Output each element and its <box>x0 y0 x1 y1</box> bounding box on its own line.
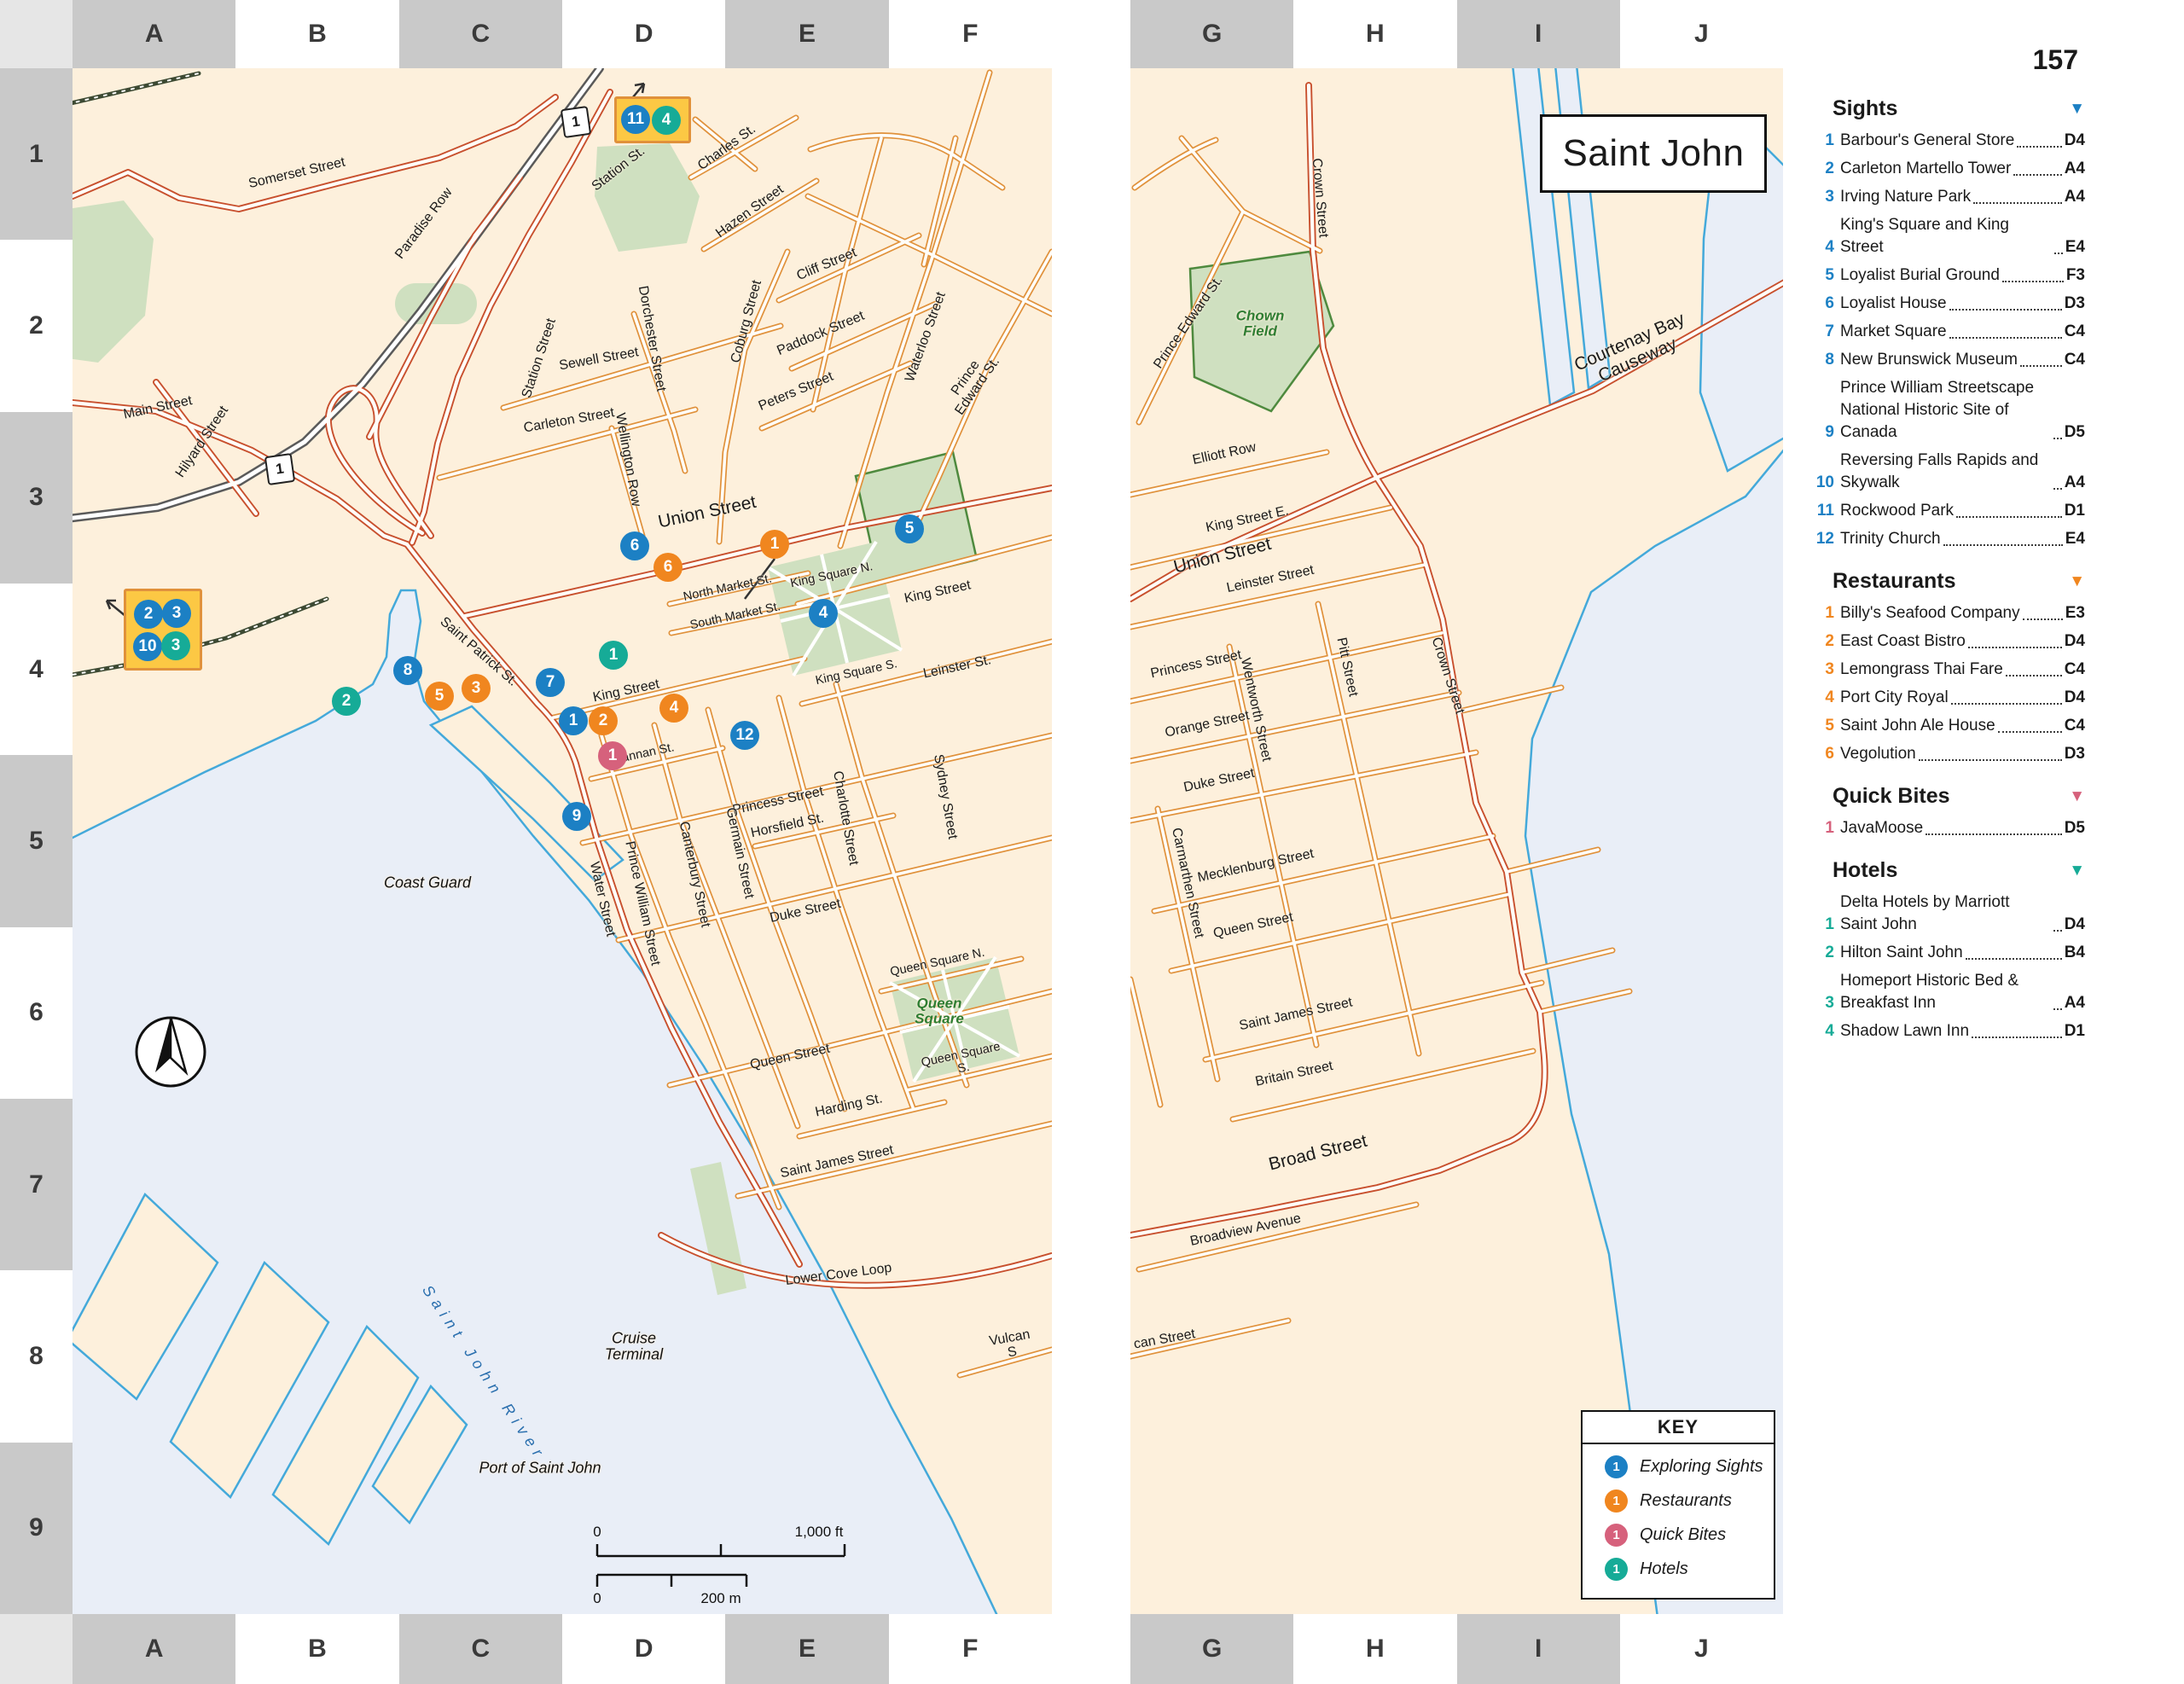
map-title: Saint John <box>1540 114 1767 193</box>
street-label: King Street <box>903 578 972 606</box>
legend-item-number: 6 <box>1812 293 1834 315</box>
legend-section-title: Hotels <box>1833 858 1897 883</box>
legend-item: 9Prince William Streetscape National His… <box>1812 377 2085 444</box>
legend-leader-dots <box>1926 833 2062 835</box>
legend-leader-dots <box>2053 1008 2062 1010</box>
marker-callout-box <box>124 589 202 671</box>
map-marker-sight-11: 11 <box>621 105 650 134</box>
street-label: Dorchester Street <box>636 285 669 392</box>
street-label: Canterbury Street <box>676 820 712 928</box>
grid-col-G: G <box>1130 1614 1293 1684</box>
grid-col-D: D <box>562 0 725 68</box>
street-label: Crown Street <box>1309 158 1330 239</box>
legend-item-name: Carleton Martello Tower <box>1840 158 2011 180</box>
legend-item: 4Shadow Lawn InnD1 <box>1812 1020 2085 1042</box>
street-label: Hazen Street <box>713 183 787 241</box>
map-panel-left: 0 1,000 ft 0 200 m Somerset StreetParadi… <box>73 68 1052 1614</box>
map-marker-sight-4: 4 <box>809 599 838 628</box>
legend-item: 2Carleton Martello TowerA4 <box>1812 158 2085 180</box>
legend-item-gridref: D1 <box>2065 500 2085 522</box>
section-triangle-icon: ▼ <box>2069 100 2085 119</box>
street-label: Orange Street <box>1164 708 1251 740</box>
grid-row-5: 5 <box>0 755 73 926</box>
map-marker-sight-12: 12 <box>730 721 759 750</box>
legend-item: 4King's Square and King StreetE4 <box>1812 214 2085 258</box>
legend-item-gridref: D1 <box>2065 1020 2085 1042</box>
key-marker-icon: 1 <box>1605 1558 1628 1581</box>
legend-item-gridref: D3 <box>2065 743 2085 765</box>
map-marker-restaurant-5: 5 <box>425 682 454 711</box>
legend-leader-dots <box>2002 281 2064 282</box>
map-marker-hotel-4: 4 <box>652 106 681 135</box>
legend-item-gridref: E4 <box>2065 528 2085 550</box>
legend-leader-dots <box>2017 146 2061 148</box>
street-label: Mecklenburg Street <box>1196 846 1315 886</box>
legend-item: 8New Brunswick MuseumC4 <box>1812 349 2085 371</box>
grid-row-6: 6 <box>0 927 73 1099</box>
street-label: Paradise Row <box>392 185 456 262</box>
legend-panel: 157 Sights▼1Barbour's General StoreD42Ca… <box>1812 44 2085 1048</box>
grid-col-F: F <box>889 0 1052 68</box>
grid-col-H: H <box>1293 1614 1456 1684</box>
key-item: 1Quick Bites <box>1605 1524 1774 1547</box>
legend-item-name: Homeport Historic Bed & Breakfast Inn <box>1840 970 2051 1014</box>
legend-item: 2East Coast BistroD4 <box>1812 630 2085 653</box>
street-label: Carleton Street <box>523 405 616 436</box>
grid-col-I: I <box>1457 1614 1620 1684</box>
street-label: King Street <box>591 677 660 705</box>
legend-item-number: 4 <box>1812 236 1834 258</box>
scale-m-max: 200 m <box>700 1590 741 1607</box>
legend-item: 1JavaMooseD5 <box>1812 817 2085 839</box>
street-label: King Square S. <box>815 658 899 688</box>
street-label: Princess Street <box>731 784 825 817</box>
street-label: Horsfield St. <box>750 810 826 840</box>
grid-col-A: A <box>73 0 235 68</box>
map-marker-quickbite-1: 1 <box>598 741 627 770</box>
legend-item-number: 10 <box>1812 472 1834 494</box>
legend-item-name: Prince William Streetscape National Hist… <box>1840 377 2051 444</box>
street-label: Paddock Street <box>775 309 866 359</box>
legend-item: 5Saint John Ale HouseC4 <box>1812 715 2085 737</box>
street-label: Broad Street <box>1267 1132 1369 1176</box>
legend-item: 7Market SquareC4 <box>1812 321 2085 343</box>
grid-row-7: 7 <box>0 1099 73 1270</box>
legend-item-name: Lemongrass Thai Fare <box>1840 659 2003 681</box>
map-marker-restaurant-3: 3 <box>462 674 491 703</box>
street-label: Station St. <box>590 143 648 194</box>
place-label: Coast Guard <box>384 874 471 891</box>
map-marker-sight-6: 6 <box>620 531 649 560</box>
legend-item-gridref: E3 <box>2065 602 2085 624</box>
legend-item-number: 8 <box>1812 349 1834 371</box>
legend-item-number: 1 <box>1812 817 1834 839</box>
scale-m-zero: 0 <box>593 1590 601 1607</box>
legend-item-gridref: E4 <box>2065 236 2085 258</box>
legend-item-name: Irving Nature Park <box>1840 186 1971 208</box>
map-marker-restaurant-2: 2 <box>589 706 618 735</box>
street-label: North Market St. <box>682 572 774 604</box>
key-marker-icon: 1 <box>1605 1455 1628 1478</box>
legend-section-header-sights: Sights▼ <box>1812 96 2085 121</box>
legend-item-gridref: D5 <box>2065 421 2085 444</box>
legend-item-gridref: A4 <box>2065 472 2085 494</box>
legend-item: 1Barbour's General StoreD4 <box>1812 130 2085 152</box>
street-label: Broadview Avenue <box>1189 1211 1303 1249</box>
legend-item-name: Loyalist Burial Ground <box>1840 264 2000 287</box>
map-marker-sight-3: 3 <box>162 599 191 628</box>
street-label: Wentworth Street <box>1238 657 1275 763</box>
key-item-label: Hotels <box>1640 1559 1688 1579</box>
street-label: Station Street <box>520 316 559 400</box>
legend-item: 3Lemongrass Thai FareC4 <box>1812 659 2085 681</box>
grid-col-E: E <box>725 0 888 68</box>
legend-leader-dots <box>2053 930 2062 932</box>
legend-item-gridref: B4 <box>2065 942 2085 964</box>
street-label: Sydney Street <box>931 753 960 840</box>
street-label: Waterloo Street <box>903 290 949 384</box>
key-box: KEY 1Exploring Sights1Restaurants1Quick … <box>1581 1410 1775 1600</box>
section-triangle-icon: ▼ <box>2069 572 2085 591</box>
highway-shield: 1 <box>561 106 591 138</box>
street-label: Prince Edward St. <box>1151 274 1226 372</box>
legend-leader-dots <box>2053 438 2062 439</box>
street-label: Courtenay Bay Causeway <box>1558 304 1710 400</box>
map-page: AABBCCDDEEFFGGHHIIJJ123456789 <box>0 0 2184 1684</box>
street-label: Britain Street <box>1254 1059 1334 1089</box>
grid-corner-top-left <box>0 0 73 68</box>
legend-item-name: Trinity Church <box>1840 528 1941 550</box>
legend-item: 3Irving Nature ParkA4 <box>1812 186 2085 208</box>
grid-col-J: J <box>1620 1614 1783 1684</box>
legend-item-gridref: D4 <box>2065 687 2085 709</box>
street-label: Germain Street <box>723 806 756 900</box>
grid-row-4: 4 <box>0 584 73 755</box>
street-label: Sewell Street <box>558 345 640 373</box>
legend-leader-dots <box>1943 544 2063 546</box>
legend-item-gridref: D4 <box>2065 130 2085 152</box>
grid-row-1: 1 <box>0 68 73 240</box>
street-label: Cliff Street <box>794 246 858 284</box>
legend-section-title: Sights <box>1833 96 1897 121</box>
legend-item-name: Saint John Ale House <box>1840 715 1995 737</box>
key-item: 1Restaurants <box>1605 1489 1774 1513</box>
street-label: Queen Square S. <box>915 1040 1008 1084</box>
street-label: Wellington Row <box>613 412 643 508</box>
map-marker-sight-8: 8 <box>393 656 422 685</box>
grid-col-C: C <box>399 1614 562 1684</box>
place-label: Port of Saint John <box>479 1460 601 1476</box>
legend-item-name: Hilton Saint John <box>1840 942 1963 964</box>
legend-item-name: Loyalist House <box>1840 293 1947 315</box>
street-label: Prince Edward St. <box>937 341 1007 424</box>
legend-item-number: 6 <box>1812 743 1834 765</box>
street-label: Leinster Street <box>1225 563 1315 596</box>
legend-leader-dots <box>1956 516 2062 518</box>
scale-ft-max: 1,000 ft <box>795 1524 844 1541</box>
legend-item-name: Reversing Falls Rapids and Skywalk <box>1840 450 2051 494</box>
legend-item-number: 2 <box>1812 942 1834 964</box>
grid-corner-bottom-left <box>0 1614 73 1684</box>
legend-leader-dots <box>1998 731 2062 733</box>
legend-leader-dots <box>1973 202 2062 204</box>
legend-item-gridref: D5 <box>2065 817 2085 839</box>
legend-leader-dots <box>2023 618 2063 620</box>
legend-item-gridref: D4 <box>2065 914 2085 936</box>
legend-section-header-hotels: Hotels▼ <box>1812 858 2085 883</box>
street-label: King Square N. <box>789 560 874 591</box>
legend-item-number: 4 <box>1812 1020 1834 1042</box>
legend-item-number: 7 <box>1812 321 1834 343</box>
street-label: Union Street <box>1172 535 1274 578</box>
grid-col-B: B <box>235 0 398 68</box>
legend-item-name: Port City Royal <box>1840 687 1949 709</box>
legend-leader-dots <box>1949 337 2062 339</box>
grid-col-I: I <box>1457 0 1620 68</box>
section-triangle-icon: ▼ <box>2069 862 2085 880</box>
street-label: Queen Square N. <box>889 947 986 980</box>
legend-leader-dots <box>1968 647 2062 648</box>
legend-section-title: Quick Bites <box>1833 784 1950 809</box>
key-item-label: Restaurants <box>1640 1491 1732 1511</box>
legend-item-number: 3 <box>1812 992 1834 1014</box>
legend-item-name: Billy's Seafood Company <box>1840 602 2020 624</box>
legend-item-gridref: C4 <box>2065 715 2085 737</box>
grid-col-J: J <box>1620 0 1783 68</box>
map-marker-sight-9: 9 <box>562 802 591 831</box>
legend-item: 6VegolutionD3 <box>1812 743 2085 765</box>
map-marker-hotel-1: 1 <box>599 641 628 670</box>
street-label: Vulcan S <box>988 1327 1034 1363</box>
map-panel-right: Crown StreetPrince Edward St.Chown Field… <box>1130 68 1783 1614</box>
map-right-overlay: Crown StreetPrince Edward St.Chown Field… <box>1130 68 1783 1614</box>
legend-leader-dots <box>2053 488 2062 490</box>
legend-item-name: Delta Hotels by Marriott Saint John <box>1840 891 2051 936</box>
street-label: South Market St. <box>689 601 782 633</box>
page-number: 157 <box>1812 44 2085 76</box>
section-triangle-icon: ▼ <box>2069 787 2085 806</box>
map-marker-restaurant-4: 4 <box>659 694 688 723</box>
place-label: Cruise Terminal <box>605 1331 663 1364</box>
legend-item-gridref: F3 <box>2066 264 2085 287</box>
legend-item: 11Rockwood ParkD1 <box>1812 500 2085 522</box>
street-label: Saint James Street <box>1238 996 1354 1034</box>
legend-item-gridref: A4 <box>2065 992 2085 1014</box>
grid-col-F: F <box>889 1614 1052 1684</box>
legend-leader-dots <box>1966 958 2062 960</box>
legend-item: 4Port City RoyalD4 <box>1812 687 2085 709</box>
legend-leader-dots <box>1951 703 2062 705</box>
legend-item-number: 4 <box>1812 687 1834 709</box>
grid-col-A: A <box>73 1614 235 1684</box>
legend-leader-dots <box>1949 309 2062 311</box>
legend-item-name: King's Square and King Street <box>1840 214 2052 258</box>
legend-item: 1Billy's Seafood CompanyE3 <box>1812 602 2085 624</box>
street-label: Union Street <box>657 493 758 532</box>
legend-leader-dots <box>2020 365 2062 367</box>
street-label: Prince William Street <box>622 840 663 967</box>
legend-item-gridref: C4 <box>2065 349 2085 371</box>
key-marker-icon: 1 <box>1605 1489 1628 1513</box>
street-label: Charles St. <box>695 122 758 173</box>
legend-item-number: 1 <box>1812 914 1834 936</box>
grid-col-D: D <box>562 1614 725 1684</box>
legend-section-title: Restaurants <box>1833 569 1956 594</box>
legend-item: 12Trinity ChurchE4 <box>1812 528 2085 550</box>
legend-item-gridref: A4 <box>2065 186 2085 208</box>
map-marker-restaurant-6: 6 <box>653 553 682 582</box>
scale-ft-zero: 0 <box>593 1524 601 1541</box>
street-label: King Street E. <box>1205 503 1290 535</box>
legend-item-gridref: D3 <box>2065 293 2085 315</box>
legend-item-number: 1 <box>1812 602 1834 624</box>
legend-item-name: Rockwood Park <box>1840 500 1954 522</box>
grid-row-2: 2 <box>0 240 73 411</box>
grid-row-9: 9 <box>0 1443 73 1614</box>
legend-section-header-quickbites: Quick Bites▼ <box>1812 784 2085 809</box>
legend-item: 6Loyalist HouseD3 <box>1812 293 2085 315</box>
legend-item-number: 5 <box>1812 715 1834 737</box>
legend-item-name: East Coast Bistro <box>1840 630 1966 653</box>
legend-item-number: 2 <box>1812 158 1834 180</box>
key-marker-icon: 1 <box>1605 1524 1628 1547</box>
legend-item: 2Hilton Saint JohnB4 <box>1812 942 2085 964</box>
street-label: Pitt Street <box>1333 636 1360 698</box>
street-label: Peters Street <box>757 369 836 414</box>
legend-item-number: 12 <box>1812 528 1834 550</box>
key-item: 1Exploring Sights <box>1605 1455 1774 1478</box>
key-item-label: Exploring Sights <box>1640 1457 1763 1477</box>
street-label: Somerset Street <box>247 155 347 192</box>
street-label: Coburg Street <box>729 279 764 365</box>
street-label: Queen Street <box>1212 910 1295 942</box>
legend-item-gridref: A4 <box>2065 158 2085 180</box>
legend-item: 1Delta Hotels by Marriott Saint JohnD4 <box>1812 891 2085 936</box>
street-label: Main Street <box>122 393 194 422</box>
legend-item-name: New Brunswick Museum <box>1840 349 2018 371</box>
map-marker-sight-5: 5 <box>895 514 924 543</box>
map-marker-hotel-3: 3 <box>161 631 190 660</box>
legend-leader-dots <box>2013 174 2061 176</box>
street-label: Water Street <box>587 861 619 938</box>
grid-col-E: E <box>725 1614 888 1684</box>
legend-item-gridref: C4 <box>2065 321 2085 343</box>
legend-leader-dots <box>1919 759 2062 761</box>
legend-item-name: Market Square <box>1840 321 1947 343</box>
legend-item-number: 2 <box>1812 630 1834 653</box>
street-label: Lower Cove Loop <box>785 1261 893 1288</box>
water-label: Saint John River <box>419 1282 549 1464</box>
legend-section-header-restaurants: Restaurants▼ <box>1812 569 2085 594</box>
legend-item-number: 1 <box>1812 130 1834 152</box>
grid-row-8: 8 <box>0 1270 73 1442</box>
grid-col-G: G <box>1130 0 1293 68</box>
street-label: Carmarthen Street <box>1169 827 1206 939</box>
street-label: Princess Street <box>1149 647 1243 681</box>
park-label: Queen Square <box>915 996 964 1028</box>
map-marker-hotel-2: 2 <box>332 687 361 716</box>
legend-item-name: Barbour's General Store <box>1840 130 2014 152</box>
legend-item-number: 3 <box>1812 659 1834 681</box>
legend-item-number: 3 <box>1812 186 1834 208</box>
highway-shield: 1 <box>264 453 295 485</box>
map-left-overlay: 0 1,000 ft 0 200 m Somerset StreetParadi… <box>73 68 1052 1614</box>
street-label: Hilyard Street <box>173 404 232 480</box>
legend-item-number: 9 <box>1812 421 1834 444</box>
street-label: Elliott Row <box>1191 440 1258 468</box>
legend-leader-dots <box>1972 1037 2062 1038</box>
legend-item: 3Homeport Historic Bed & Breakfast InnA4 <box>1812 970 2085 1014</box>
legend-item-name: Shadow Lawn Inn <box>1840 1020 1969 1042</box>
key-item-label: Quick Bites <box>1640 1525 1726 1545</box>
map-marker-sight-10: 10 <box>133 632 162 661</box>
legend-leader-dots <box>2054 253 2063 254</box>
legend-item: 10Reversing Falls Rapids and SkywalkA4 <box>1812 450 2085 494</box>
street-label: Duke Street <box>1182 766 1256 795</box>
grid-col-B: B <box>235 1614 398 1684</box>
legend-lists: Sights▼1Barbour's General StoreD42Carlet… <box>1812 96 2085 1042</box>
map-marker-restaurant-1: 1 <box>760 530 789 559</box>
street-label: can Street <box>1133 1327 1197 1352</box>
key-item: 1Hotels <box>1605 1558 1774 1581</box>
street-label: Saint James Street <box>779 1143 895 1182</box>
grid-col-C: C <box>399 0 562 68</box>
legend-item-name: Vegolution <box>1840 743 1916 765</box>
key-title: KEY <box>1583 1412 1774 1444</box>
street-label: Charlotte Street <box>830 769 861 866</box>
street-label: Duke Street <box>769 897 842 926</box>
map-marker-sight-1: 1 <box>559 706 588 735</box>
legend-item-number: 5 <box>1812 264 1834 287</box>
legend-item-number: 11 <box>1812 500 1834 522</box>
legend-item-gridref: D4 <box>2065 630 2085 653</box>
street-label: Queen Street <box>749 1042 832 1073</box>
legend-item: 5Loyalist Burial GroundF3 <box>1812 264 2085 287</box>
key-items: 1Exploring Sights1Restaurants1Quick Bite… <box>1583 1455 1774 1581</box>
legend-item-name: JavaMoose <box>1840 817 1923 839</box>
grid-col-H: H <box>1293 0 1456 68</box>
street-label: Leinster St. <box>922 653 993 682</box>
park-label: Chown Field <box>1236 309 1285 340</box>
map-marker-sight-2: 2 <box>134 600 163 629</box>
legend-leader-dots <box>2006 675 2062 677</box>
street-label: Harding St. <box>814 1091 884 1120</box>
map-marker-sight-7: 7 <box>536 668 565 697</box>
grid-row-3: 3 <box>0 412 73 584</box>
street-label: Crown Street <box>1428 636 1467 716</box>
legend-item-gridref: C4 <box>2065 659 2085 681</box>
